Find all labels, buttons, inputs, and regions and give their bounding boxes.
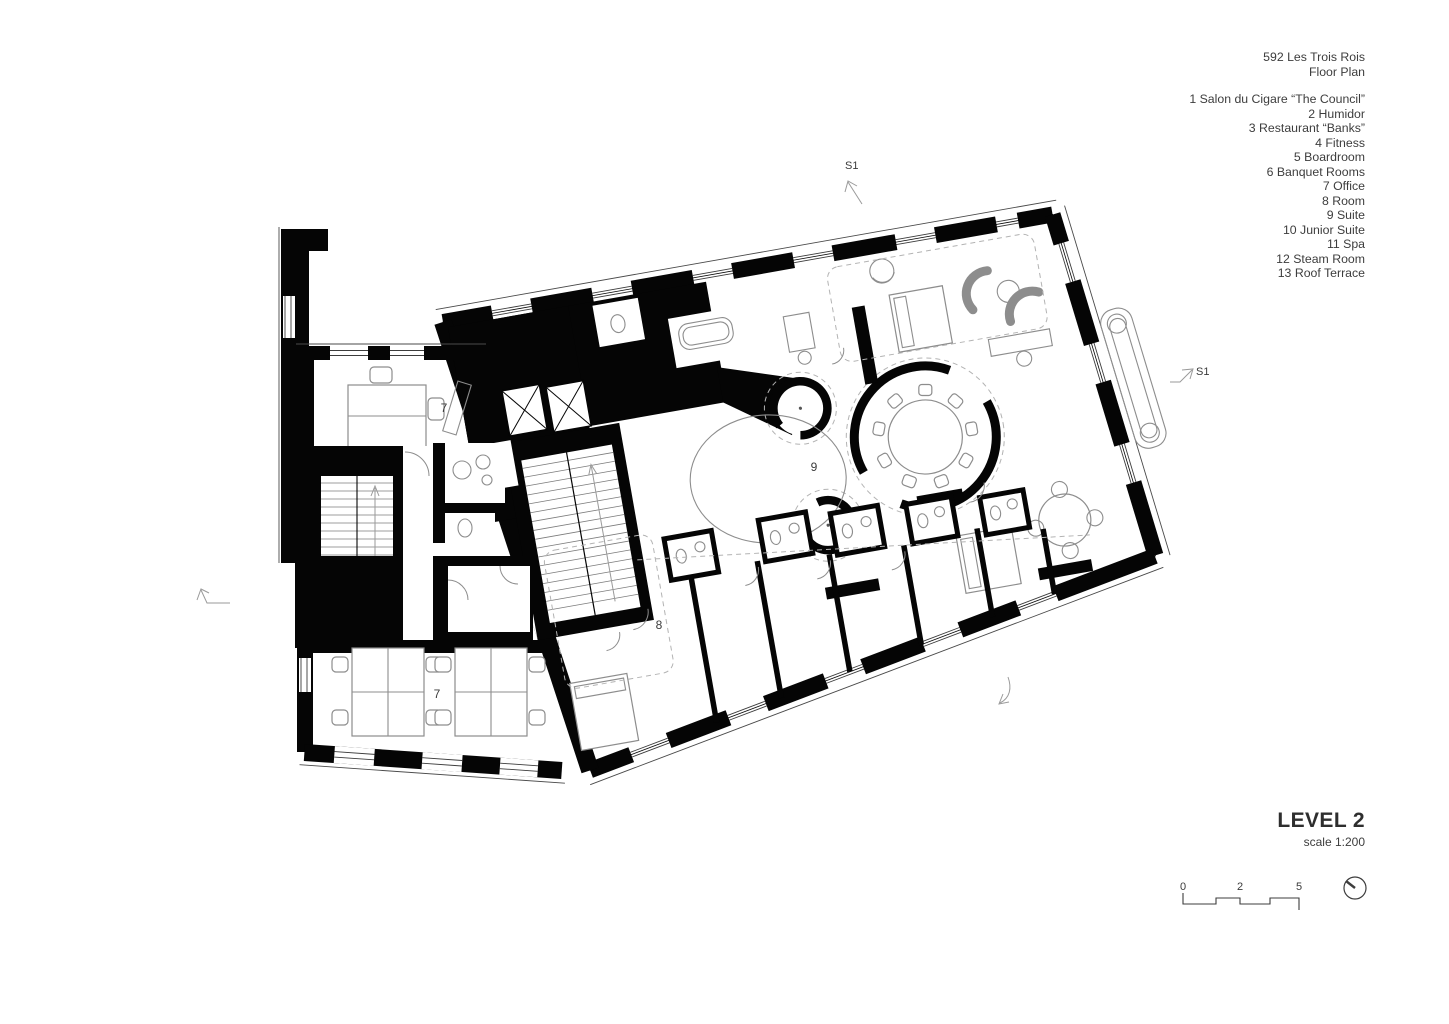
project-title: 592 Les Trois Rois [1189,50,1365,65]
svg-text:S1: S1 [845,160,858,172]
legend-item: 13 Roof Terrace [1189,266,1365,281]
scale-label-2: 2 [1237,881,1243,893]
legend-item: 5 Boardroom [1189,150,1365,165]
legend-item: 1 Salon du Cigare “The Council” [1189,92,1365,107]
section-arrow-left [197,589,230,603]
bed [570,673,639,750]
legend: 592 Les Trois Rois Floor Plan 1 Salon du… [1189,50,1365,281]
north-indicator-icon [1344,877,1366,899]
room-label-office-lower: 7 [434,687,441,701]
level-title: LEVEL 2 [1277,810,1365,832]
desk-cluster [332,648,442,736]
legend-item: 2 Humidor [1189,107,1365,122]
section-marker-s1-top: S1 [845,160,862,204]
main-building [432,186,1223,798]
bed [889,286,952,352]
annex-south-wall [300,744,567,784]
legend-item: 3 Restaurant “Banks” [1189,121,1365,136]
svg-text:S1: S1 [1196,366,1209,378]
scale-label-5: 5 [1296,881,1302,893]
scale-label-0: 0 [1180,881,1186,893]
section-marker-s1-right: S1 [1170,366,1209,382]
legend-item: 4 Fitness [1189,136,1365,151]
legend-item: 12 Steam Room [1189,252,1365,267]
scale-note: scale 1:200 [1277,835,1365,849]
annex-mid-block [295,556,533,648]
annex-staircase [309,446,403,572]
annex-wc [445,443,505,543]
legend-item: 6 Banquet Rooms [1189,165,1365,180]
legend-item: 7 Office [1189,179,1365,194]
floor-plan-page: 7 7 8 9 S1 S1 0 2 5 [0,0,1449,1024]
room-label-suite-9: 9 [811,460,818,474]
legend-item: 11 Spa [1189,237,1365,252]
room-label-room-8: 8 [656,618,663,632]
revision-arrow [999,677,1010,704]
drawing-type: Floor Plan [1189,65,1365,80]
scale-bar: 0 2 5 [1180,881,1302,910]
desk-cluster [435,648,545,736]
wc-room [592,298,645,347]
legend-item: 9 Suite [1189,208,1365,223]
legend-item: 10 Junior Suite [1189,223,1365,238]
legend-item: 8 Room [1189,194,1365,209]
title-block: LEVEL 2 scale 1:200 [1277,810,1365,849]
room-label-office-upper: 7 [441,401,448,415]
